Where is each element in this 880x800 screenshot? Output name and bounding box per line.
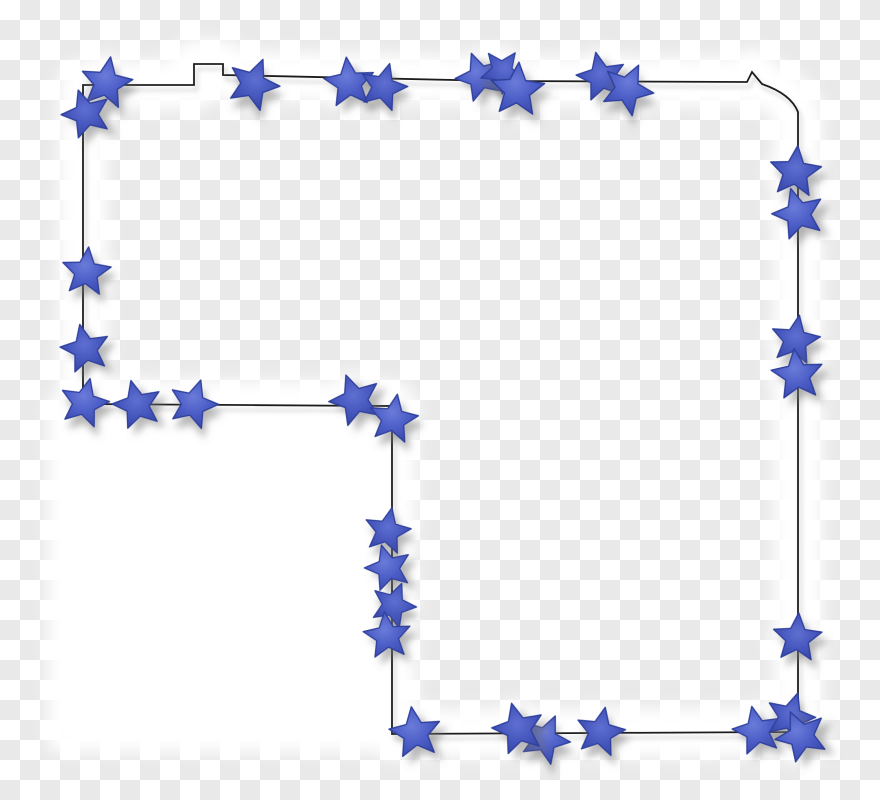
clipart-canvas bbox=[0, 0, 880, 800]
white-halo-layer bbox=[48, 47, 829, 765]
stars-border-graphic bbox=[0, 0, 880, 800]
halo-bottom-left-area bbox=[48, 396, 392, 752]
